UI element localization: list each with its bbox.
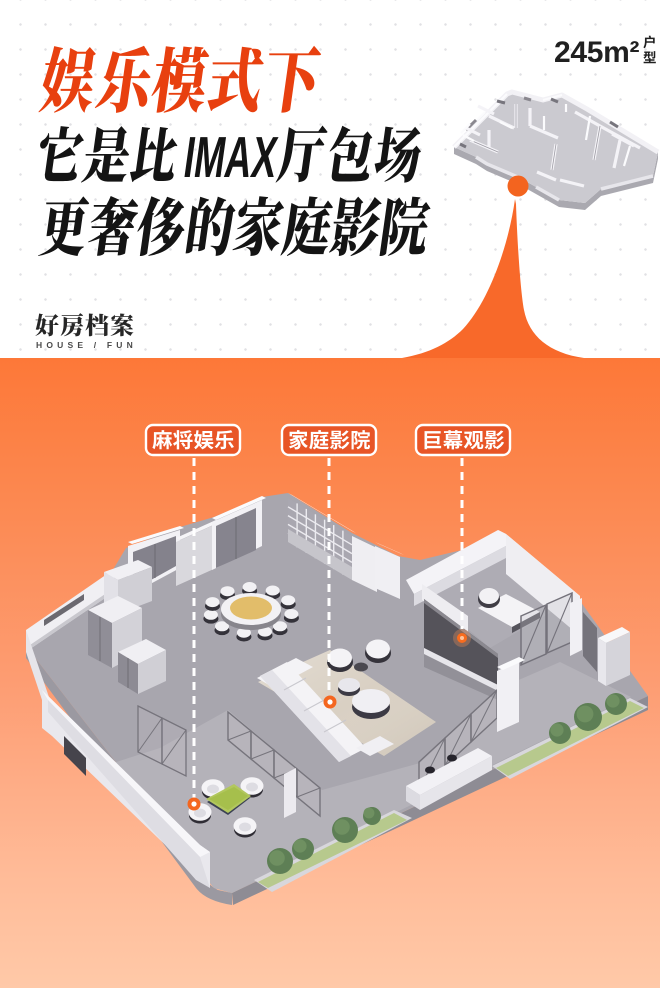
svg-text:IMAX: IMAX	[180, 125, 281, 190]
svg-text:HOUSE / FUN: HOUSE / FUN	[36, 340, 137, 350]
svg-text:245m²: 245m²	[554, 36, 640, 69]
